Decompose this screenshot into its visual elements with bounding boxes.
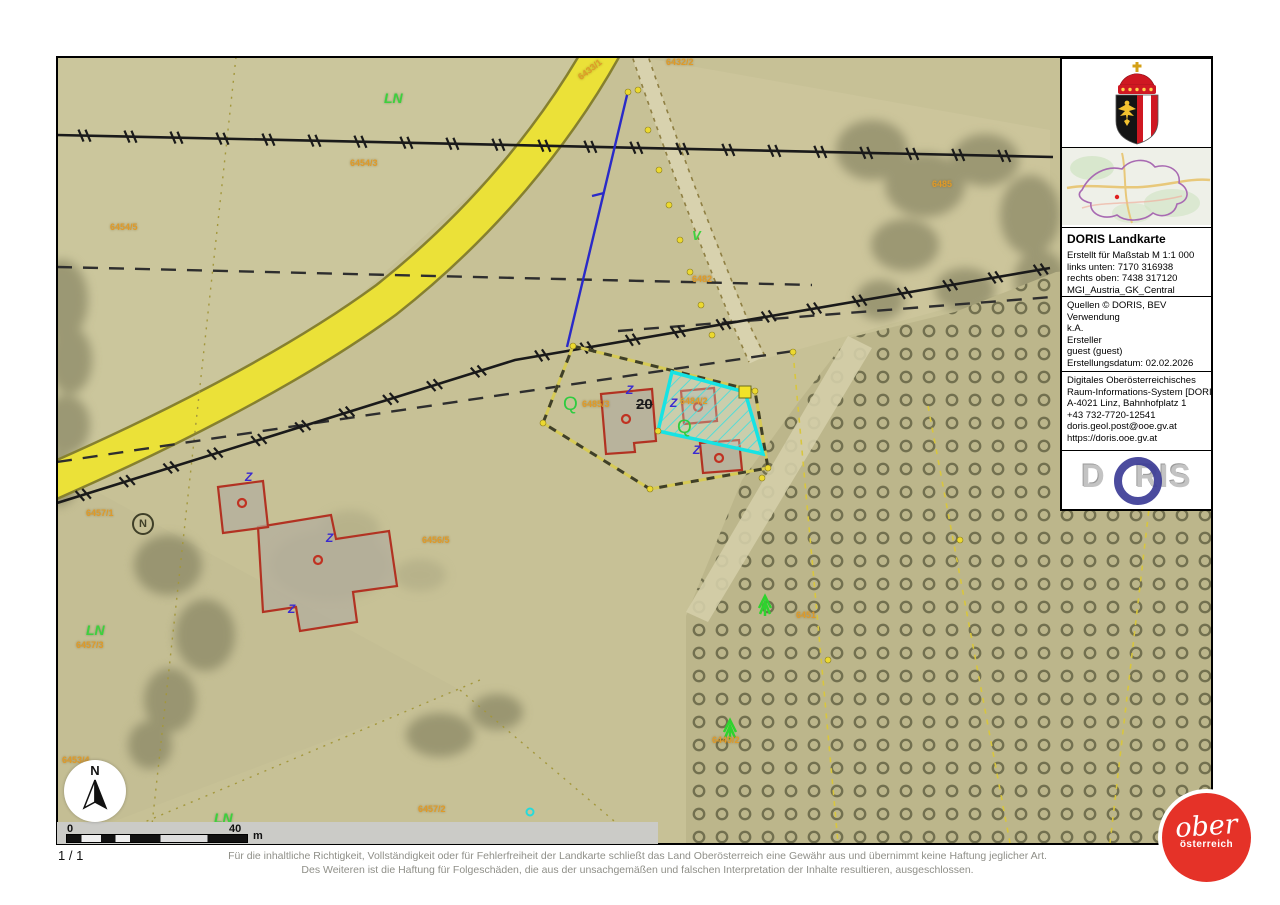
map-document: LN6433/16432/26454/364856454/5V6482Q6485… xyxy=(0,0,1280,905)
contact-line: Raum-Informations-System [DORIS] xyxy=(1067,387,1206,399)
source-line: Ersteller xyxy=(1067,335,1206,347)
doris-logo-ring-icon xyxy=(1114,457,1162,505)
coat-of-arms-box xyxy=(1062,59,1211,147)
source-line: Erstellungsdatum: 02.02.2026 xyxy=(1067,358,1206,370)
meta-line: Erstellt für Maßstab M 1:1 000 xyxy=(1067,250,1206,262)
doris-logo: D RIS xyxy=(1062,450,1211,509)
disclaimer-line-1: Für die inhaltliche Richtigkeit, Vollstä… xyxy=(60,849,1215,863)
contact-line: Digitales Oberösterreichisches xyxy=(1067,375,1206,387)
source-line: Verwendung xyxy=(1067,312,1206,324)
ober-oesterreich-logo: ober österreich xyxy=(1158,789,1255,886)
north-arrow-icon xyxy=(80,778,110,812)
north-arrow-label: N xyxy=(64,763,126,778)
scalebar: 0 40 m xyxy=(57,822,658,844)
scalebar-bar xyxy=(66,834,248,843)
contact-line: doris.geol.post@ooe.gv.at xyxy=(1067,421,1206,433)
disclaimer: Für die inhaltliche Richtigkeit, Vollstä… xyxy=(60,849,1215,877)
source-line: guest (guest) xyxy=(1067,346,1206,358)
contact-line: https://doris.ooe.gv.at xyxy=(1067,433,1206,445)
upper-austria-coat-of-arms-icon xyxy=(1062,59,1211,145)
contact-line: +43 732-7720-12541 xyxy=(1067,410,1206,422)
source-line: k.A. xyxy=(1067,323,1206,335)
panel-contact-section: Digitales Oberösterreichisches Raum-Info… xyxy=(1062,371,1211,450)
panel-meta-section: DORIS Landkarte Erstellt für Maßstab M 1… xyxy=(1062,227,1211,296)
ober-logo-script: ober xyxy=(1161,812,1251,842)
meta-line: rechts oben: 7438 317120 xyxy=(1067,273,1206,285)
contact-line: A-4021 Linz, Bahnhofplatz 1 xyxy=(1067,398,1206,410)
meta-line: links unten: 7170 316938 xyxy=(1067,262,1206,274)
overview-map xyxy=(1062,147,1211,227)
scalebar-unit: m xyxy=(253,830,263,842)
info-panel: DORIS Landkarte Erstellt für Maßstab M 1… xyxy=(1060,57,1213,511)
overview-map-image xyxy=(1062,148,1211,225)
north-arrow: N xyxy=(64,760,126,822)
disclaimer-line-2: Des Weiteren ist die Haftung für Folgesc… xyxy=(60,863,1215,877)
ober-oesterreich-logo-circle: ober österreich xyxy=(1162,793,1251,882)
panel-source-section: Quellen © DORIS, BEV Verwendung k.A. Ers… xyxy=(1062,296,1211,371)
panel-title: DORIS Landkarte xyxy=(1067,232,1206,246)
source-line: Quellen © DORIS, BEV xyxy=(1067,300,1206,312)
meta-line: MGI_Austria_GK_Central xyxy=(1067,285,1206,297)
